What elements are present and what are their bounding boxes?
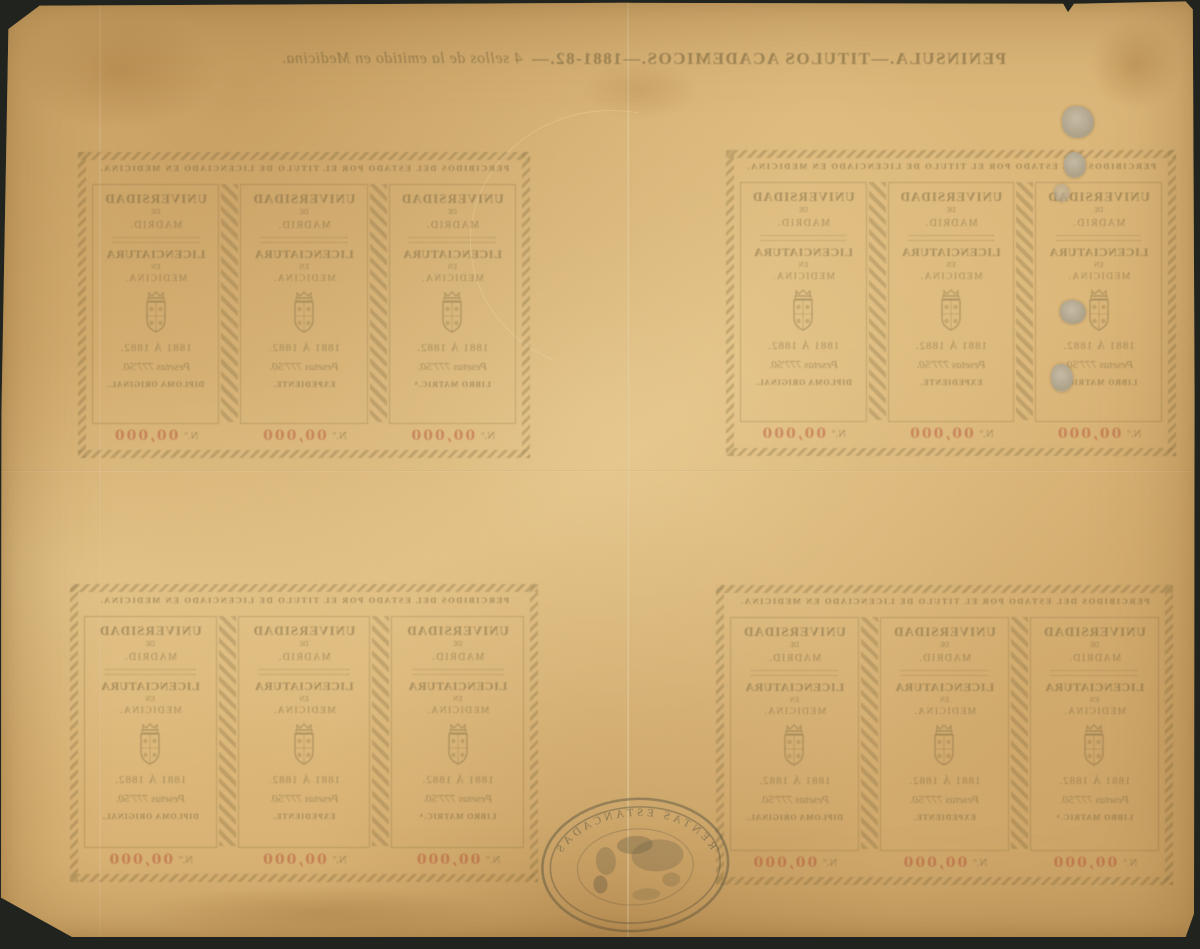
hatched-divider: [1016, 182, 1033, 420]
block-banner: PERCIBIDOS DEL ESTADO POR EL TITULO DE L…: [80, 595, 528, 611]
stamp-university: UNIVERSIDAD: [900, 190, 1003, 204]
serial-number-value: 00,000: [902, 855, 968, 871]
stamp-city: MADRID.: [1068, 653, 1122, 664]
serial-number-value: 00,000: [1052, 855, 1118, 871]
rentas-estancadas-seal-icon: RENTAS ESTANCADAS: [531, 780, 739, 943]
stamp-de: DE: [299, 209, 308, 217]
stamp-university: UNIVERSIDAD: [1047, 190, 1150, 204]
stamp-block-bottom-left: PERCIBIDOS DEL ESTADO POR EL TITULO DE L…: [70, 584, 538, 882]
serial-number-value: 00,000: [1056, 426, 1122, 442]
stamp-de: DE: [1094, 207, 1103, 215]
stamp-degree: LICENCIATURA: [101, 680, 200, 693]
stamp-years: 1881 Á 1882.: [1063, 340, 1135, 352]
block-border: [70, 584, 78, 882]
adhesive-patch: [1051, 364, 1073, 392]
stamp-value: Pesetas 777'50.: [917, 359, 986, 371]
stamp-years: 1881 Á 1882.: [114, 774, 186, 786]
serial-number-label: N.º: [333, 430, 347, 442]
stamp-value: Pesetas 777'50.: [769, 359, 838, 371]
stamp-frame: UNIVERSIDAD DE MADRID. LICENCIATURA EN M…: [240, 184, 367, 424]
ornament-rule: [908, 235, 993, 241]
spanish-royal-arms-icon: [287, 290, 321, 336]
stamp-doc-type: DIPLOMA ORIGINAL.: [755, 379, 852, 388]
serial-number-value: 00,000: [261, 852, 327, 868]
spanish-royal-arms-icon: [934, 288, 968, 334]
stamp-frame: UNIVERSIDAD DE MADRID. LICENCIATURA EN M…: [1035, 182, 1162, 422]
serial-number-label: N.º: [1123, 857, 1137, 869]
stamp-city: MADRID.: [1072, 218, 1126, 229]
block-banner: PERCIBIDOS DEL ESTADO POR EL TITULO DE L…: [726, 596, 1163, 612]
adhesive-patch: [1054, 184, 1070, 202]
stamp-city: MADRID.: [777, 218, 831, 229]
stamp-de: DE: [790, 642, 799, 650]
serial-number: N.º 00,000: [238, 848, 371, 872]
stamp-degree: LICENCIATURA: [901, 246, 1000, 259]
stamp-degree: LICENCIATURA: [403, 248, 502, 261]
block-border: [530, 584, 538, 882]
hatched-divider: [372, 616, 389, 846]
stamp-field: MEDICINA.: [772, 272, 835, 282]
stamp-block-top-left: PERCIBIDOS DEL ESTADO POR EL TITULO DE L…: [78, 152, 530, 458]
stamp-doc-type: LIBRO MATRIC.ᴬ: [1060, 379, 1137, 388]
stamp-en: EN: [146, 696, 155, 704]
stamp-de: DE: [946, 207, 955, 215]
stamp-years: 1881 Á 1882.: [268, 774, 340, 786]
hatched-divider: [370, 184, 387, 422]
stamp-field: MEDICINA.: [1067, 272, 1130, 282]
stamp-field: MEDICINA.: [763, 707, 826, 717]
hatched-divider: [861, 617, 878, 849]
stamp-diploma-original: UNIVERSIDAD DE MADRID. LICENCIATURA EN M…: [740, 180, 867, 446]
stain: [1090, 20, 1180, 110]
stamp-field: MEDICINA.: [421, 274, 484, 284]
ornament-rule: [751, 670, 838, 676]
stamp-de: DE: [151, 209, 160, 217]
serial-number-value: 00,000: [261, 428, 327, 444]
stamp-de: DE: [448, 209, 457, 217]
stamp-degree: LICENCIATURA: [895, 681, 994, 694]
stamp-degree: LICENCIATURA: [1049, 246, 1148, 259]
stamp-libro-matricula: UNIVERSIDAD DE MADRID. LICENCIATURA EN M…: [1030, 615, 1159, 875]
stamp-value: Pesetas 777'50.: [270, 793, 339, 805]
sheet-header: PENINSULA.—TITULOS ACADEMICOS.—1881-82.—…: [188, 44, 1006, 74]
block-border: [1168, 150, 1176, 456]
stamp-en: EN: [790, 697, 799, 705]
hatched-divider: [869, 182, 886, 420]
stain: [140, 885, 500, 940]
stamp-university: UNIVERSIDAD: [99, 624, 202, 638]
stamp-university: UNIVERSIDAD: [743, 625, 846, 639]
hatched-divider: [1011, 617, 1028, 849]
serial-number-label: N.º: [481, 430, 495, 442]
stamp-years: 1881 Á 1882.: [268, 342, 340, 354]
serial-number: N.º 00,000: [389, 424, 516, 448]
stamp-block-top-right: PERCIBIDOS DEL ESTADO POR EL TITULO DE L…: [726, 150, 1176, 456]
adhesive-patch: [1060, 300, 1086, 324]
stamp-field: MEDICINA.: [272, 706, 335, 716]
stamp-value: Pesetas 777'50.: [760, 794, 829, 806]
stamps-row: UNIVERSIDAD DE MADRID. LICENCIATURA EN M…: [84, 614, 524, 872]
stamp-doc-type: LIBRO MATRIC.ᴬ: [419, 813, 496, 822]
stamp-de: DE: [146, 641, 155, 649]
stamp-en: EN: [151, 264, 160, 272]
stamp-en: EN: [799, 262, 808, 270]
stamp-diploma-original: UNIVERSIDAD DE MADRID. LICENCIATURA EN M…: [92, 182, 219, 448]
stamp-expediente: UNIVERSIDAD DE MADRID. LICENCIATURA EN M…: [238, 614, 371, 872]
stamps-row: UNIVERSIDAD DE MADRID. LICENCIATURA EN M…: [730, 615, 1159, 875]
stamp-years: 1881 Á 1882.: [915, 340, 987, 352]
stamp-value: Pesetas 777'50.: [1064, 359, 1133, 371]
stamp-city: MADRID.: [924, 218, 978, 229]
stamp-field: MEDICINA.: [124, 274, 187, 284]
stamp-city: MADRID.: [768, 653, 822, 664]
paper-sheet: PENINSULA.—TITULOS ACADEMICOS.—1881-82.—…: [0, 0, 1200, 937]
stamp-doc-type: EXPEDIENTE.: [913, 814, 976, 823]
curved-crease: [470, 110, 752, 372]
horizontal-fold-crease: [0, 470, 1200, 472]
stamp-en: EN: [940, 697, 949, 705]
stamp-university: UNIVERSIDAD: [752, 190, 855, 204]
serial-number: N.º 00,000: [1030, 851, 1159, 875]
stamp-de: DE: [1090, 642, 1099, 650]
stamp-degree: LICENCIATURA: [1045, 681, 1144, 694]
stamp-field: MEDICINA.: [119, 706, 182, 716]
serial-number-value: 00,000: [752, 855, 818, 871]
stamp-doc-type: EXPEDIENTE.: [273, 813, 336, 822]
stamp-expediente: UNIVERSIDAD DE MADRID. LICENCIATURA EN M…: [888, 180, 1015, 446]
stamps-row: UNIVERSIDAD DE MADRID. LICENCIATURA EN M…: [740, 180, 1162, 446]
seal-rim-text: RENTAS ESTANCADAS: [550, 801, 720, 863]
stamp-frame: UNIVERSIDAD DE MADRID. LICENCIATURA EN M…: [1030, 617, 1159, 851]
serial-number-label: N.º: [832, 428, 846, 440]
svg-text:RENTAS ESTANCADAS: RENTAS ESTANCADAS: [550, 801, 720, 863]
stamp-en: EN: [448, 264, 457, 272]
serial-number-value: 00,000: [107, 852, 173, 868]
block-border: [78, 152, 530, 160]
serial-number-value: 00,000: [409, 428, 475, 444]
stamp-degree: LICENCIATURA: [754, 246, 853, 259]
stamp-university: UNIVERSIDAD: [253, 192, 356, 206]
stamp-years: 1881 Á 1882.: [758, 775, 830, 787]
serial-number: N.º 00,000: [84, 848, 217, 872]
stamp-university: UNIVERSIDAD: [104, 192, 207, 206]
spanish-royal-arms-icon: [139, 290, 173, 336]
stamp-doc-type: LIBRO MATRIC.ᴬ: [414, 381, 491, 390]
spanish-royal-arms-icon: [441, 722, 475, 768]
spanish-royal-arms-icon: [786, 288, 820, 334]
stamp-en: EN: [453, 696, 462, 704]
block-border: [726, 150, 734, 456]
stamp-degree: LICENCIATURA: [408, 680, 507, 693]
stamps-row: UNIVERSIDAD DE MADRID. LICENCIATURA EN M…: [92, 182, 516, 448]
stamp-value: Pesetas 777'50.: [418, 361, 487, 373]
block-border: [716, 585, 724, 885]
stamp-value: Pesetas 777'50.: [910, 794, 979, 806]
stamp-value: Pesetas 777'50.: [270, 361, 339, 373]
stamp-city: MADRID.: [124, 652, 178, 663]
stamp-en: EN: [946, 262, 955, 270]
block-border: [78, 450, 530, 458]
serial-number: N.º 00,000: [1035, 422, 1162, 446]
serial-number: N.º 00,000: [880, 851, 1009, 875]
stamp-diploma-original: UNIVERSIDAD DE MADRID. LICENCIATURA EN M…: [84, 614, 217, 872]
block-border: [1165, 585, 1173, 885]
spanish-royal-arms-icon: [1078, 723, 1112, 769]
stamp-libro-matricula: UNIVERSIDAD DE MADRID. LICENCIATURA EN M…: [391, 614, 524, 872]
stamp-field: MEDICINA.: [919, 272, 982, 282]
ornament-rule: [409, 237, 495, 243]
stamp-libro-matricula: UNIVERSIDAD DE MADRID. LICENCIATURA EN M…: [1035, 180, 1162, 446]
stamp-libro-matricula: UNIVERSIDAD DE MADRID. LICENCIATURA EN M…: [389, 182, 516, 448]
stamp-field: MEDICINA.: [913, 707, 976, 717]
stamp-de: DE: [299, 641, 308, 649]
serial-number: N.º 00,000: [888, 422, 1015, 446]
stamp-frame: UNIVERSIDAD DE MADRID. LICENCIATURA EN M…: [740, 182, 867, 422]
stamp-city: MADRID.: [918, 653, 972, 664]
stamp-city: MADRID.: [277, 652, 331, 663]
stain: [20, 10, 220, 130]
spanish-royal-arms-icon: [778, 723, 812, 769]
stamp-en: EN: [1094, 262, 1103, 270]
stamp-degree: LICENCIATURA: [254, 248, 353, 261]
stamp-value: Pesetas 777'50.: [116, 793, 185, 805]
spanish-royal-arms-icon: [435, 290, 469, 336]
stamp-degree: LICENCIATURA: [106, 248, 205, 261]
stamp-en: EN: [1090, 697, 1099, 705]
serial-number-label: N.º: [980, 428, 994, 440]
stamp-city: MADRID.: [277, 220, 331, 231]
block-border: [726, 150, 1176, 158]
serial-number-label: N.º: [823, 857, 837, 869]
stamp-value: Pesetas 777'50.: [1060, 794, 1129, 806]
spanish-royal-arms-icon: [1082, 288, 1116, 334]
stamp-doc-type: EXPEDIENTE.: [920, 379, 983, 388]
stamp-field: MEDICINA.: [1063, 707, 1126, 717]
spanish-royal-arms-icon: [928, 723, 962, 769]
stain: [580, 60, 700, 120]
series-description: 4 sellos de la emitido en Medicina.: [281, 50, 522, 68]
ornament-rule: [901, 670, 988, 676]
ornament-rule: [105, 669, 195, 675]
adhesive-patch: [1062, 106, 1094, 138]
serial-number-label: N.º: [1127, 428, 1141, 440]
spanish-royal-arms-icon: [133, 722, 167, 768]
block-banner: PERCIBIDOS DEL ESTADO POR EL TITULO DE L…: [736, 161, 1166, 177]
serial-number-label: N.º: [184, 430, 198, 442]
serial-number: N.º 00,000: [740, 422, 867, 446]
block-border: [70, 874, 538, 882]
stamp-city: MADRID.: [431, 652, 485, 663]
serial-number-label: N.º: [333, 854, 347, 866]
spanish-royal-arms-icon: [287, 722, 321, 768]
stamp-years: 1881 Á 1882.: [416, 342, 488, 354]
serial-number: N.º 00,000: [92, 424, 219, 448]
stamp-frame: UNIVERSIDAD DE MADRID. LICENCIATURA EN M…: [880, 617, 1009, 851]
stamp-city: MADRID.: [426, 220, 480, 231]
serial-number: N.º 00,000: [391, 848, 524, 872]
stamp-en: EN: [299, 696, 308, 704]
stamp-frame: UNIVERSIDAD DE MADRID. LICENCIATURA EN M…: [389, 184, 516, 424]
stamp-frame: UNIVERSIDAD DE MADRID. LICENCIATURA EN M…: [730, 617, 859, 851]
stamp-doc-type: DIPLOMA ORIGINAL.: [107, 381, 204, 390]
stamp-field: MEDICINA.: [426, 706, 489, 716]
serial-number: N.º 00,000: [730, 851, 859, 875]
stamp-block-bottom-right: PERCIBIDOS DEL ESTADO POR EL TITULO DE L…: [716, 585, 1173, 885]
stamp-de: DE: [940, 642, 949, 650]
series-title: PENINSULA.—TITULOS ACADEMICOS.—1881-82.—: [530, 49, 1006, 69]
stamp-value: Pesetas 777'50.: [121, 361, 190, 373]
vertical-fold-crease: [627, 0, 629, 937]
stamp-years: 1881 Á 1882.: [422, 774, 494, 786]
serial-number-label: N.º: [179, 854, 193, 866]
stamp-university: UNIVERSIDAD: [893, 625, 996, 639]
stamp-frame: UNIVERSIDAD DE MADRID. LICENCIATURA EN M…: [888, 182, 1015, 422]
serial-number-value: 00,000: [908, 426, 974, 442]
block-border: [716, 877, 1173, 885]
stamp-en: EN: [299, 264, 308, 272]
stamp-doc-type: LIBRO MATRIC.ᴬ: [1056, 814, 1133, 823]
stamp-degree: LICENCIATURA: [745, 681, 844, 694]
stamp-university: UNIVERSIDAD: [406, 624, 509, 638]
stamp-university: UNIVERSIDAD: [1043, 625, 1146, 639]
block-border: [522, 152, 530, 458]
block-border: [716, 585, 1173, 593]
stamp-degree: LICENCIATURA: [254, 680, 353, 693]
stamp-frame: UNIVERSIDAD DE MADRID. LICENCIATURA EN M…: [391, 616, 524, 848]
ornament-rule: [261, 237, 347, 243]
serial-number-label: N.º: [486, 854, 500, 866]
ornament-rule: [413, 669, 503, 675]
stamp-value: Pesetas 777'50.: [423, 793, 492, 805]
stamp-expediente: UNIVERSIDAD DE MADRID. LICENCIATURA EN M…: [880, 615, 1009, 875]
stamp-university: UNIVERSIDAD: [401, 192, 504, 206]
stamp-years: 1881 Á 1882.: [908, 775, 980, 787]
block-banner: PERCIBIDOS DEL ESTADO POR EL TITULO DE L…: [88, 163, 520, 179]
stamp-university: UNIVERSIDAD: [253, 624, 356, 638]
stamp-years: 1881 Á 1882.: [767, 340, 839, 352]
stamp-expediente: UNIVERSIDAD DE MADRID. LICENCIATURA EN M…: [240, 182, 367, 448]
ornament-rule: [1051, 670, 1138, 676]
stamp-frame: UNIVERSIDAD DE MADRID. LICENCIATURA EN M…: [238, 616, 371, 848]
ornament-rule: [113, 237, 199, 243]
left-fold-crease: [99, 0, 101, 937]
ornament-rule: [1056, 235, 1141, 241]
stamp-years: 1881 Á 1882.: [120, 342, 192, 354]
stamp-de: DE: [799, 207, 808, 215]
stamp-field: MEDICINA.: [272, 274, 335, 284]
ornament-rule: [761, 235, 846, 241]
stamp-de: DE: [453, 641, 462, 649]
hatched-divider: [221, 184, 238, 422]
stamp-doc-type: DIPLOMA ORIGINAL.: [102, 813, 199, 822]
serial-number-value: 00,000: [760, 426, 826, 442]
stamp-doc-type: DIPLOMA ORIGINAL.: [746, 814, 843, 823]
block-border: [70, 584, 538, 592]
adhesive-patch: [1064, 152, 1086, 178]
ornament-rule: [259, 669, 349, 675]
stamp-doc-type: EXPEDIENTE.: [273, 381, 336, 390]
serial-number-value: 00,000: [415, 852, 481, 868]
stamp-years: 1881 Á 1882.: [1058, 775, 1130, 787]
stamp-diploma-original: UNIVERSIDAD DE MADRID. LICENCIATURA EN M…: [730, 615, 859, 875]
serial-number-label: N.º: [973, 857, 987, 869]
hatched-divider: [219, 616, 236, 846]
serial-number: N.º 00,000: [240, 424, 367, 448]
stamp-frame: UNIVERSIDAD DE MADRID. LICENCIATURA EN M…: [92, 184, 219, 424]
serial-number-value: 00,000: [113, 428, 179, 444]
stamp-city: MADRID.: [129, 220, 183, 231]
block-border: [78, 152, 86, 458]
stamp-frame: UNIVERSIDAD DE MADRID. LICENCIATURA EN M…: [84, 616, 217, 848]
block-border: [726, 448, 1176, 456]
